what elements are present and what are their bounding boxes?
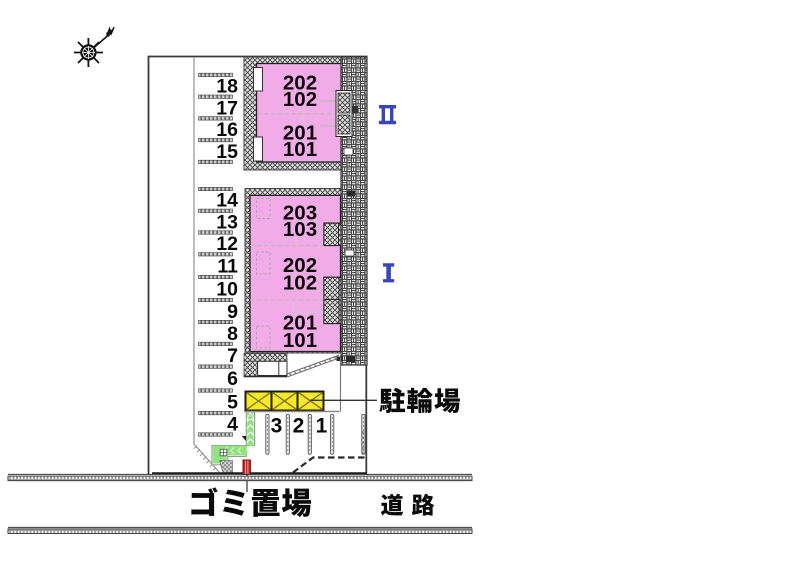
svg-text:15: 15 (216, 141, 238, 163)
svg-text:16: 16 (216, 119, 238, 141)
svg-text:101: 101 (283, 138, 317, 161)
svg-text:9: 9 (227, 301, 238, 323)
svg-text:1: 1 (316, 415, 328, 438)
svg-text:5: 5 (227, 391, 238, 413)
svg-text:8: 8 (227, 323, 238, 345)
svg-text:101: 101 (283, 329, 317, 352)
svg-text:14: 14 (216, 190, 238, 212)
svg-text:4: 4 (227, 414, 238, 436)
svg-text:11: 11 (217, 256, 238, 278)
svg-text:103: 103 (283, 218, 317, 241)
svg-text:18: 18 (216, 76, 238, 98)
svg-text:102: 102 (283, 88, 317, 111)
svg-text:7: 7 (227, 345, 238, 367)
svg-text:102: 102 (283, 271, 317, 294)
svg-text:17: 17 (216, 97, 238, 119)
svg-text:2: 2 (293, 415, 305, 438)
svg-text:10: 10 (216, 278, 238, 300)
svg-text:12: 12 (216, 233, 238, 255)
svg-text:13: 13 (216, 211, 238, 233)
svg-text:6: 6 (227, 368, 238, 390)
svg-text:3: 3 (271, 415, 283, 438)
